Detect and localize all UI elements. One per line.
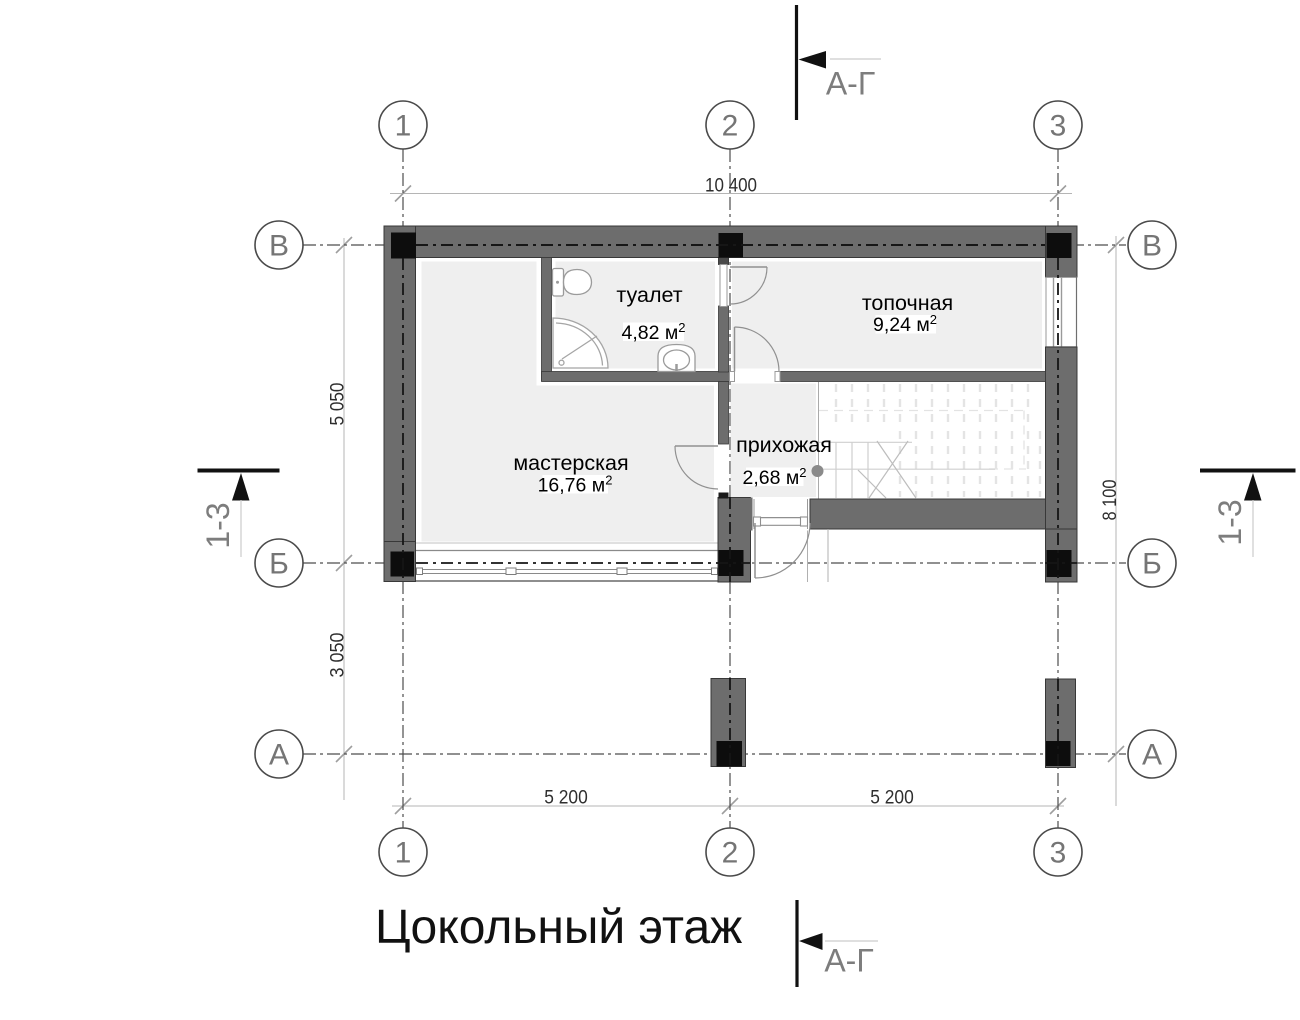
svg-text:Цокольный этаж: Цокольный этаж [375, 901, 742, 954]
svg-text:3: 3 [1050, 110, 1067, 143]
svg-text:1-3: 1-3 [200, 502, 236, 548]
svg-text:2,68 м2: 2,68 м2 [742, 465, 806, 489]
svg-text:Б: Б [1142, 548, 1162, 581]
svg-text:мастерская: мастерская [513, 451, 628, 475]
svg-text:А-Г: А-Г [824, 943, 873, 979]
svg-text:А: А [1142, 739, 1162, 772]
svg-text:16,76 м2: 16,76 м2 [538, 473, 613, 497]
svg-text:В: В [1142, 230, 1162, 263]
svg-text:5 050: 5 050 [327, 382, 349, 425]
svg-text:3: 3 [1050, 837, 1067, 870]
svg-text:Б: Б [269, 548, 289, 581]
svg-text:10 400: 10 400 [705, 175, 757, 197]
svg-text:1-3: 1-3 [1212, 499, 1248, 545]
svg-text:прихожая: прихожая [736, 433, 832, 457]
svg-text:5 200: 5 200 [870, 787, 914, 809]
svg-text:3 050: 3 050 [327, 632, 349, 677]
svg-text:А: А [269, 739, 289, 772]
svg-text:4,82 м2: 4,82 м2 [621, 320, 685, 344]
svg-text:8 100: 8 100 [1099, 479, 1121, 520]
svg-text:А-Г: А-Г [826, 66, 875, 102]
svg-text:1: 1 [395, 110, 412, 143]
svg-text:В: В [269, 230, 289, 263]
svg-text:туалет: туалет [616, 283, 682, 307]
svg-text:2: 2 [722, 110, 739, 143]
svg-text:1: 1 [395, 837, 412, 870]
svg-text:9,24 м2: 9,24 м2 [873, 312, 937, 336]
svg-text:2: 2 [722, 837, 739, 870]
svg-text:5 200: 5 200 [544, 787, 588, 809]
svg-text:топочная: топочная [862, 291, 953, 315]
